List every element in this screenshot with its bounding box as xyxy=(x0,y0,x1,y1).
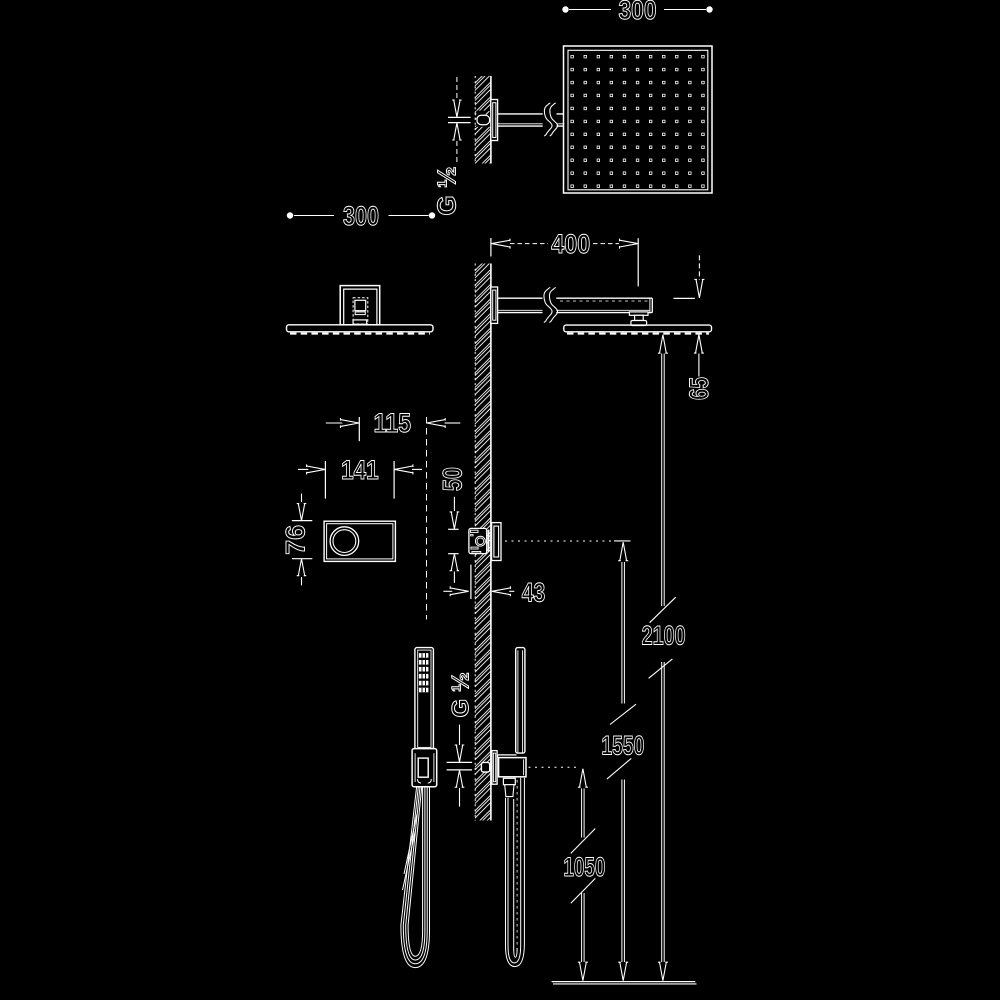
svg-text:1050: 1050 xyxy=(563,852,605,882)
svg-text:115: 115 xyxy=(374,408,412,438)
svg-text:65: 65 xyxy=(684,377,714,400)
svg-text:50: 50 xyxy=(438,467,468,491)
svg-text:400: 400 xyxy=(551,229,590,259)
svg-text:300: 300 xyxy=(343,201,379,231)
svg-text:141: 141 xyxy=(341,455,379,485)
svg-text:1550: 1550 xyxy=(601,730,644,760)
svg-text:76: 76 xyxy=(281,525,311,555)
svg-text:43: 43 xyxy=(522,578,546,608)
svg-text:300: 300 xyxy=(619,0,657,25)
svg-text:G ½: G ½ xyxy=(432,166,462,215)
svg-text:G ½: G ½ xyxy=(447,672,474,717)
svg-text:2100: 2100 xyxy=(642,621,686,651)
